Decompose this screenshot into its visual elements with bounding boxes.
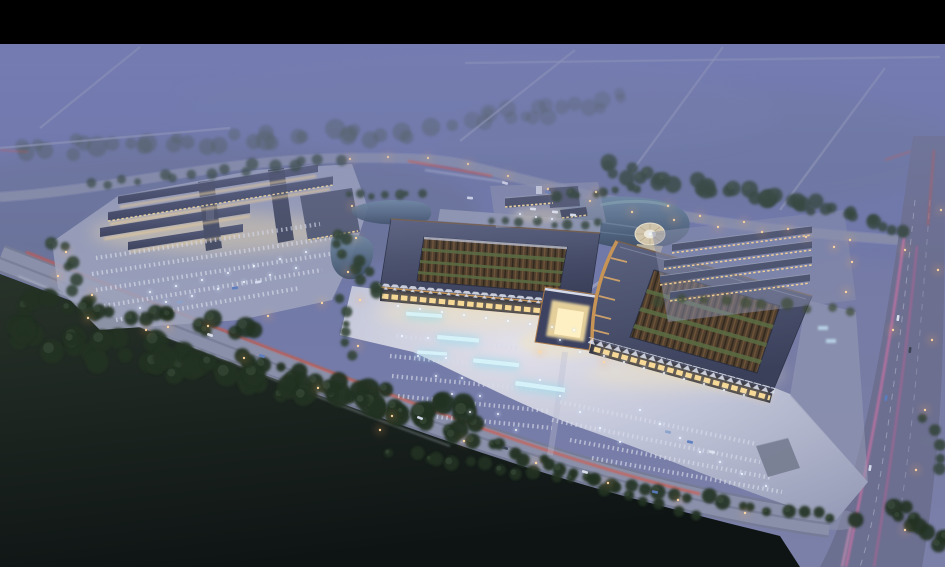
plaza-light <box>599 427 601 429</box>
tree-highlight <box>203 356 210 363</box>
aerial-rendering-image <box>0 0 945 567</box>
tree-highlight <box>933 539 940 546</box>
tree <box>722 296 732 306</box>
plaza-light <box>679 437 681 439</box>
street-lamp <box>243 357 245 359</box>
haze-overlay <box>0 44 945 259</box>
tree <box>103 306 114 317</box>
tree <box>429 452 443 466</box>
tree <box>40 288 59 307</box>
tree-highlight <box>147 333 158 344</box>
plaza-light <box>445 357 447 359</box>
plaza-light <box>253 265 255 267</box>
plaza-light <box>603 355 605 357</box>
tree-highlight <box>388 401 395 408</box>
street-lamp <box>904 529 906 531</box>
plaza-light <box>743 394 745 396</box>
street-lamp <box>87 317 89 319</box>
plaza-light <box>435 375 437 377</box>
plaza-light <box>479 395 481 397</box>
tree-highlight <box>66 333 73 340</box>
street-lamp <box>91 294 93 296</box>
tree <box>848 512 864 528</box>
tree-highlight <box>218 365 229 376</box>
plaza-light <box>485 317 487 319</box>
tree-highlight <box>625 491 630 496</box>
plaza-light <box>295 267 297 269</box>
tree <box>918 414 927 423</box>
tree-highlight <box>398 408 402 412</box>
plaza-light <box>639 409 641 411</box>
street-lamp <box>744 512 746 514</box>
tree <box>70 273 83 286</box>
tree <box>466 456 476 466</box>
plaza-light <box>191 295 193 297</box>
plaza-light <box>559 339 561 341</box>
tree <box>86 350 109 373</box>
tree-highlight <box>887 501 895 509</box>
tree <box>411 446 425 460</box>
tree-highlight <box>343 308 348 313</box>
tree <box>919 524 935 540</box>
street-lamp <box>915 469 917 471</box>
tree-highlight <box>380 384 387 391</box>
tree <box>153 345 177 369</box>
top-letterbox <box>0 0 945 44</box>
tree <box>526 465 540 479</box>
tree <box>677 294 686 303</box>
street-lamp <box>379 429 381 431</box>
tree <box>828 303 837 312</box>
tree <box>276 362 285 371</box>
tree <box>64 262 73 271</box>
street-lamp <box>357 345 359 347</box>
plaza-light <box>401 335 403 337</box>
plaza-light <box>741 473 743 475</box>
plaza-light <box>165 301 167 303</box>
plaza-light <box>451 393 453 395</box>
tree-highlight <box>43 342 54 353</box>
plaza-light <box>529 323 531 325</box>
tree-highlight <box>784 506 790 512</box>
tree-highlight <box>717 496 724 503</box>
street-lamp <box>145 329 147 331</box>
plaza-light <box>643 367 645 369</box>
street-lamp <box>57 275 59 277</box>
tree-highlight <box>342 328 346 332</box>
street-lamp <box>539 351 541 353</box>
plaza-light <box>703 383 705 385</box>
street-lamp <box>535 462 537 464</box>
tree <box>682 493 692 503</box>
plaza-light <box>201 279 203 281</box>
plaza-light <box>441 311 443 313</box>
tree <box>478 456 492 470</box>
plaza-light <box>397 305 399 307</box>
tree <box>181 356 204 379</box>
plaza-light <box>699 451 701 453</box>
plaza-light <box>469 411 471 413</box>
plaza-light <box>461 377 463 379</box>
tree-highlight <box>763 508 767 512</box>
plaza-light <box>659 423 661 425</box>
rendering-canvas <box>0 0 945 567</box>
plaza-light <box>683 378 685 380</box>
plaza-light <box>427 337 429 339</box>
tree <box>702 488 717 503</box>
tree-highlight <box>257 359 264 366</box>
tree-highlight <box>455 403 466 414</box>
tree-highlight <box>230 327 236 333</box>
tree <box>347 350 357 360</box>
street-lamp <box>607 482 609 484</box>
tree <box>639 483 651 495</box>
tree-highlight <box>344 322 347 325</box>
tree <box>370 399 387 416</box>
tree-highlight <box>385 450 389 454</box>
tree <box>936 454 945 464</box>
tree-highlight <box>164 310 169 315</box>
tree-highlight <box>167 369 175 377</box>
tree <box>846 307 855 316</box>
plaza-light <box>559 395 561 397</box>
tree <box>929 424 941 436</box>
plaza-light <box>217 288 219 290</box>
plaza-light <box>579 351 581 353</box>
tree-highlight <box>206 312 214 320</box>
tree-highlight <box>496 466 501 471</box>
street-lamp <box>463 440 465 442</box>
street-lamp <box>603 361 605 363</box>
plaza-light <box>419 308 421 310</box>
tree-highlight <box>495 440 500 445</box>
tree <box>638 497 648 507</box>
tree-highlight <box>413 404 424 415</box>
street-lamp <box>321 302 323 304</box>
plaza-light <box>507 320 509 322</box>
plaza-light <box>175 285 177 287</box>
tree <box>625 479 638 492</box>
tree-highlight <box>63 303 69 309</box>
plaza-light <box>551 326 553 328</box>
tree-highlight <box>150 307 157 314</box>
plaza-light <box>579 411 581 413</box>
plaza-light <box>719 461 721 463</box>
plaza-light <box>417 355 419 357</box>
tree <box>11 318 36 343</box>
plaza-light <box>243 281 245 283</box>
tree-highlight <box>447 430 454 437</box>
tree <box>740 297 751 308</box>
tree <box>652 296 664 308</box>
tree <box>674 506 685 517</box>
tree <box>756 299 766 309</box>
tree <box>700 296 708 304</box>
tree <box>355 274 366 285</box>
tree <box>344 391 357 404</box>
plaza-light <box>573 329 575 331</box>
tree-highlight <box>79 302 87 310</box>
plaza-light <box>623 361 625 363</box>
street-lamp <box>267 315 269 317</box>
plaza-light <box>497 413 499 415</box>
plaza-light <box>149 291 151 293</box>
street-lamp <box>317 387 319 389</box>
tree <box>66 285 78 297</box>
plaza-light <box>539 379 541 381</box>
tree <box>814 507 825 518</box>
tree <box>587 474 599 486</box>
tree-highlight <box>93 332 103 342</box>
street-lamp <box>207 325 209 327</box>
tree-highlight <box>323 382 330 389</box>
tree <box>781 298 793 310</box>
street-lamp <box>359 299 361 301</box>
street-lamp <box>924 409 926 411</box>
tree <box>335 294 345 304</box>
street-lamp <box>851 261 853 263</box>
plaza-light <box>515 429 517 431</box>
tree-highlight <box>194 320 201 327</box>
tree <box>803 305 812 314</box>
tree <box>297 374 309 386</box>
tree-highlight <box>296 389 305 398</box>
tree <box>118 348 132 362</box>
tree-highlight <box>126 313 132 319</box>
street-lamp <box>677 499 679 501</box>
street-lamp <box>892 329 894 331</box>
tree-highlight <box>446 458 453 465</box>
street-lamp <box>391 415 393 417</box>
tree-highlight <box>309 375 316 382</box>
street-lamp <box>845 291 847 293</box>
tree <box>799 506 811 518</box>
plaza-light <box>227 272 229 274</box>
tree-highlight <box>555 465 561 471</box>
lit-kiosk <box>826 339 836 343</box>
tree <box>22 289 42 309</box>
street-lamp <box>167 326 169 328</box>
tree <box>691 510 701 520</box>
street-lamp <box>931 339 933 341</box>
street-lamp <box>347 271 349 273</box>
plaza-light <box>765 485 767 487</box>
tree <box>900 501 913 514</box>
tree <box>552 472 562 482</box>
plaza-light <box>139 307 141 309</box>
tree-highlight <box>568 475 572 479</box>
tree <box>246 322 263 339</box>
tree <box>341 338 350 347</box>
plaza-light <box>463 314 465 316</box>
plaza-light <box>723 389 725 391</box>
lit-kiosk <box>818 326 828 330</box>
tree <box>516 453 530 467</box>
plaza-light <box>663 372 665 374</box>
tree-highlight <box>826 515 830 519</box>
tree-highlight <box>357 395 364 402</box>
tree-highlight <box>238 319 247 328</box>
gate-bright-core <box>554 308 584 338</box>
plaza-light <box>269 274 271 276</box>
tree-highlight <box>584 473 588 477</box>
tree-highlight <box>490 441 494 445</box>
tree <box>371 287 383 299</box>
street-lamp <box>937 269 939 271</box>
plaza-light <box>619 441 621 443</box>
tree-highlight <box>894 512 899 517</box>
tree-highlight <box>94 306 101 313</box>
tree <box>365 267 375 277</box>
tree-highlight <box>511 469 517 475</box>
